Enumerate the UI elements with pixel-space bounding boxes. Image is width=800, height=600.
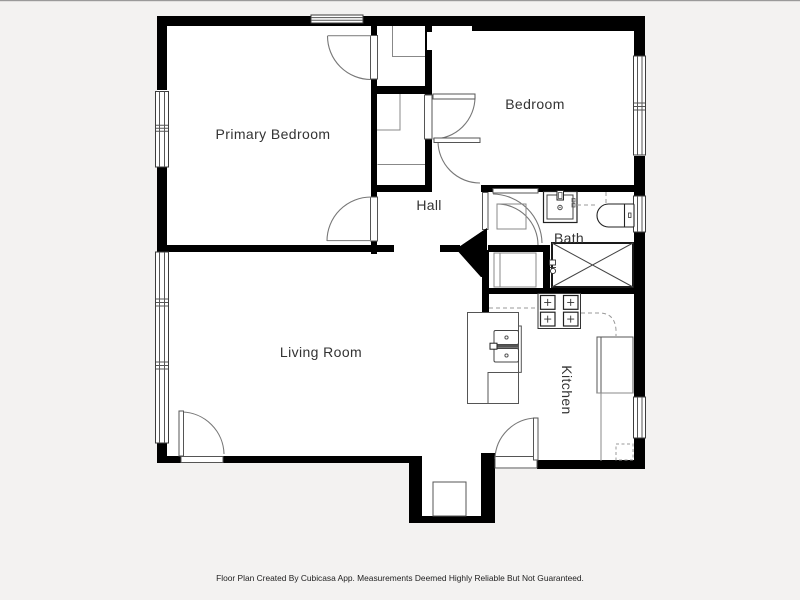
svg-text:Bath: Bath: [554, 230, 584, 246]
svg-text:Living Room: Living Room: [280, 344, 362, 360]
svg-text:Bedroom: Bedroom: [505, 96, 565, 112]
svg-text:Kitchen: Kitchen: [559, 365, 575, 415]
svg-text:Primary Bedroom: Primary Bedroom: [216, 126, 331, 142]
svg-text:Hall: Hall: [416, 197, 441, 213]
svg-text:Floor Plan Created By Cubicasa: Floor Plan Created By Cubicasa App. Meas…: [216, 573, 584, 583]
